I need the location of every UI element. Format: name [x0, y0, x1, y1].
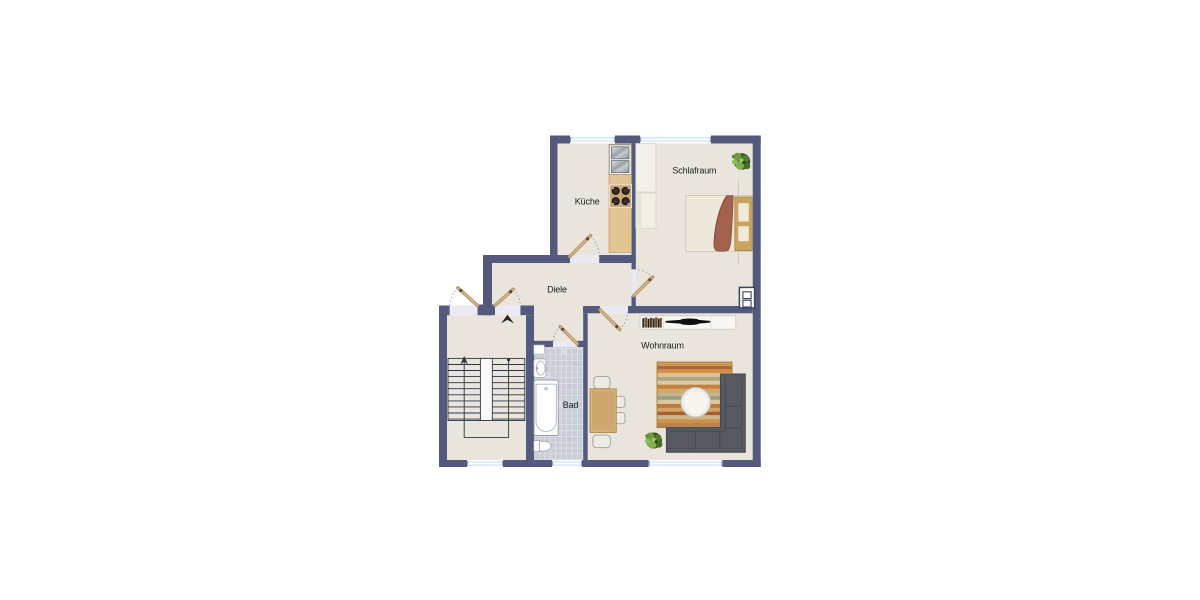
svg-text:Wohnraum: Wohnraum — [641, 341, 684, 351]
svg-text:Bad: Bad — [563, 400, 579, 410]
svg-text:Küche: Küche — [575, 197, 600, 207]
svg-text:Schlafraum: Schlafraum — [672, 166, 716, 176]
svg-text:Diele: Diele — [547, 285, 567, 295]
